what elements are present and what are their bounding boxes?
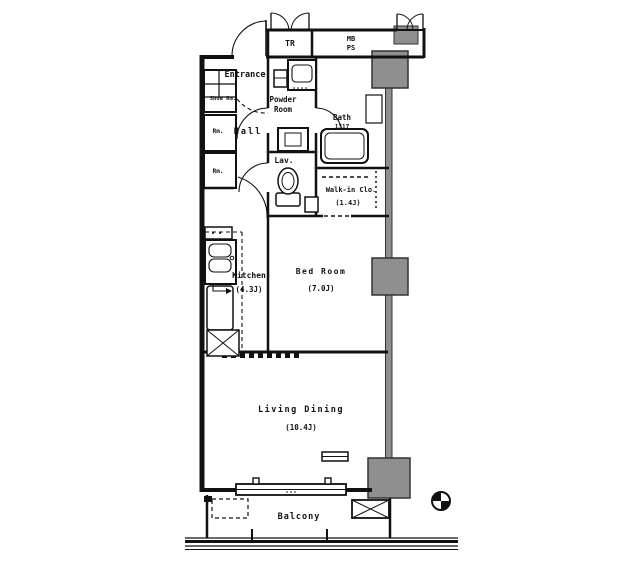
door-swing-icon: [232, 21, 266, 56]
living-dining-label: Living Dining: [258, 404, 344, 415]
drain-mark: [204, 496, 212, 502]
balcony-zone: [185, 495, 458, 550]
door-swing-icon: [271, 13, 289, 30]
bathtub-icon: [321, 129, 368, 163]
floor-plan-svg: TR MB PS Entrance Shoe Rm. Powder Room B…: [0, 0, 640, 569]
shoe-room-label: Shoe Rm.: [210, 96, 237, 102]
dot: [290, 491, 292, 493]
toilet-tank: [276, 193, 300, 206]
powder-room-label: Powder: [269, 95, 297, 104]
trunk-room-label: TR: [285, 39, 295, 48]
bath-size-label: 1317: [335, 124, 350, 131]
entrance-label: Entrance: [225, 70, 266, 80]
walkin-closet-label: Walk-in Clo.: [326, 186, 377, 194]
lavatory-label: Lav.: [274, 156, 293, 165]
door-swing-icon: [239, 163, 268, 192]
floor-plan-page: TR MB PS Entrance Shoe Rm. Powder Room B…: [0, 0, 640, 569]
shear-wall-east-lower: [386, 295, 393, 458]
window-handle: [325, 478, 331, 484]
dot: [305, 87, 307, 89]
entrance-door: [232, 20, 266, 56]
living-dining-size: (10.4J): [285, 423, 317, 432]
balcony-label: Balcony: [278, 512, 321, 522]
dot: [297, 87, 299, 89]
dot: [301, 87, 303, 89]
shear-wall-east-upper: [386, 88, 393, 258]
pipe-box: [305, 197, 318, 212]
door-swing-icon: [291, 13, 309, 30]
kitchen-counter: [207, 286, 233, 330]
dot: [286, 491, 288, 493]
storage-label: Rm.: [213, 128, 224, 135]
pipe-space-label: PS: [347, 44, 355, 52]
bath-counter: [366, 95, 382, 123]
washer-pan-icon: [212, 499, 248, 518]
room-labels: TR MB PS Entrance Shoe Rm. Powder Room B…: [210, 35, 377, 522]
bedroom-label: Bed Room: [296, 267, 347, 276]
dot: [293, 87, 295, 89]
kitchen-size: (4.3J): [235, 285, 262, 294]
bath-label: Bath: [333, 113, 351, 122]
toilet-icon: [278, 168, 298, 194]
wall-cabinet: [205, 227, 232, 239]
living-details: [322, 452, 348, 461]
dot: [294, 491, 296, 493]
window-handle: [253, 478, 259, 484]
hall-label: Hall: [234, 127, 262, 137]
storage-label: Rm.: [213, 168, 224, 175]
door-swing-icon: [238, 177, 267, 218]
washer-space-box: [278, 128, 308, 151]
structural-column: [372, 258, 408, 295]
walkin-closet-size: (1.4J): [335, 199, 360, 207]
meter-box-label: MB: [347, 35, 355, 43]
structural-column: [368, 458, 410, 498]
bath-fixtures: [321, 95, 382, 163]
bedroom-size: (7.0J): [307, 284, 334, 293]
entrance-step-line: [237, 99, 268, 113]
powder-room-label2: Room: [274, 105, 293, 114]
compass-icon: [432, 492, 450, 510]
lavatory-fixtures: [276, 168, 318, 212]
south-window: [236, 478, 346, 495]
kitchen-label: Kitchen: [232, 270, 266, 280]
